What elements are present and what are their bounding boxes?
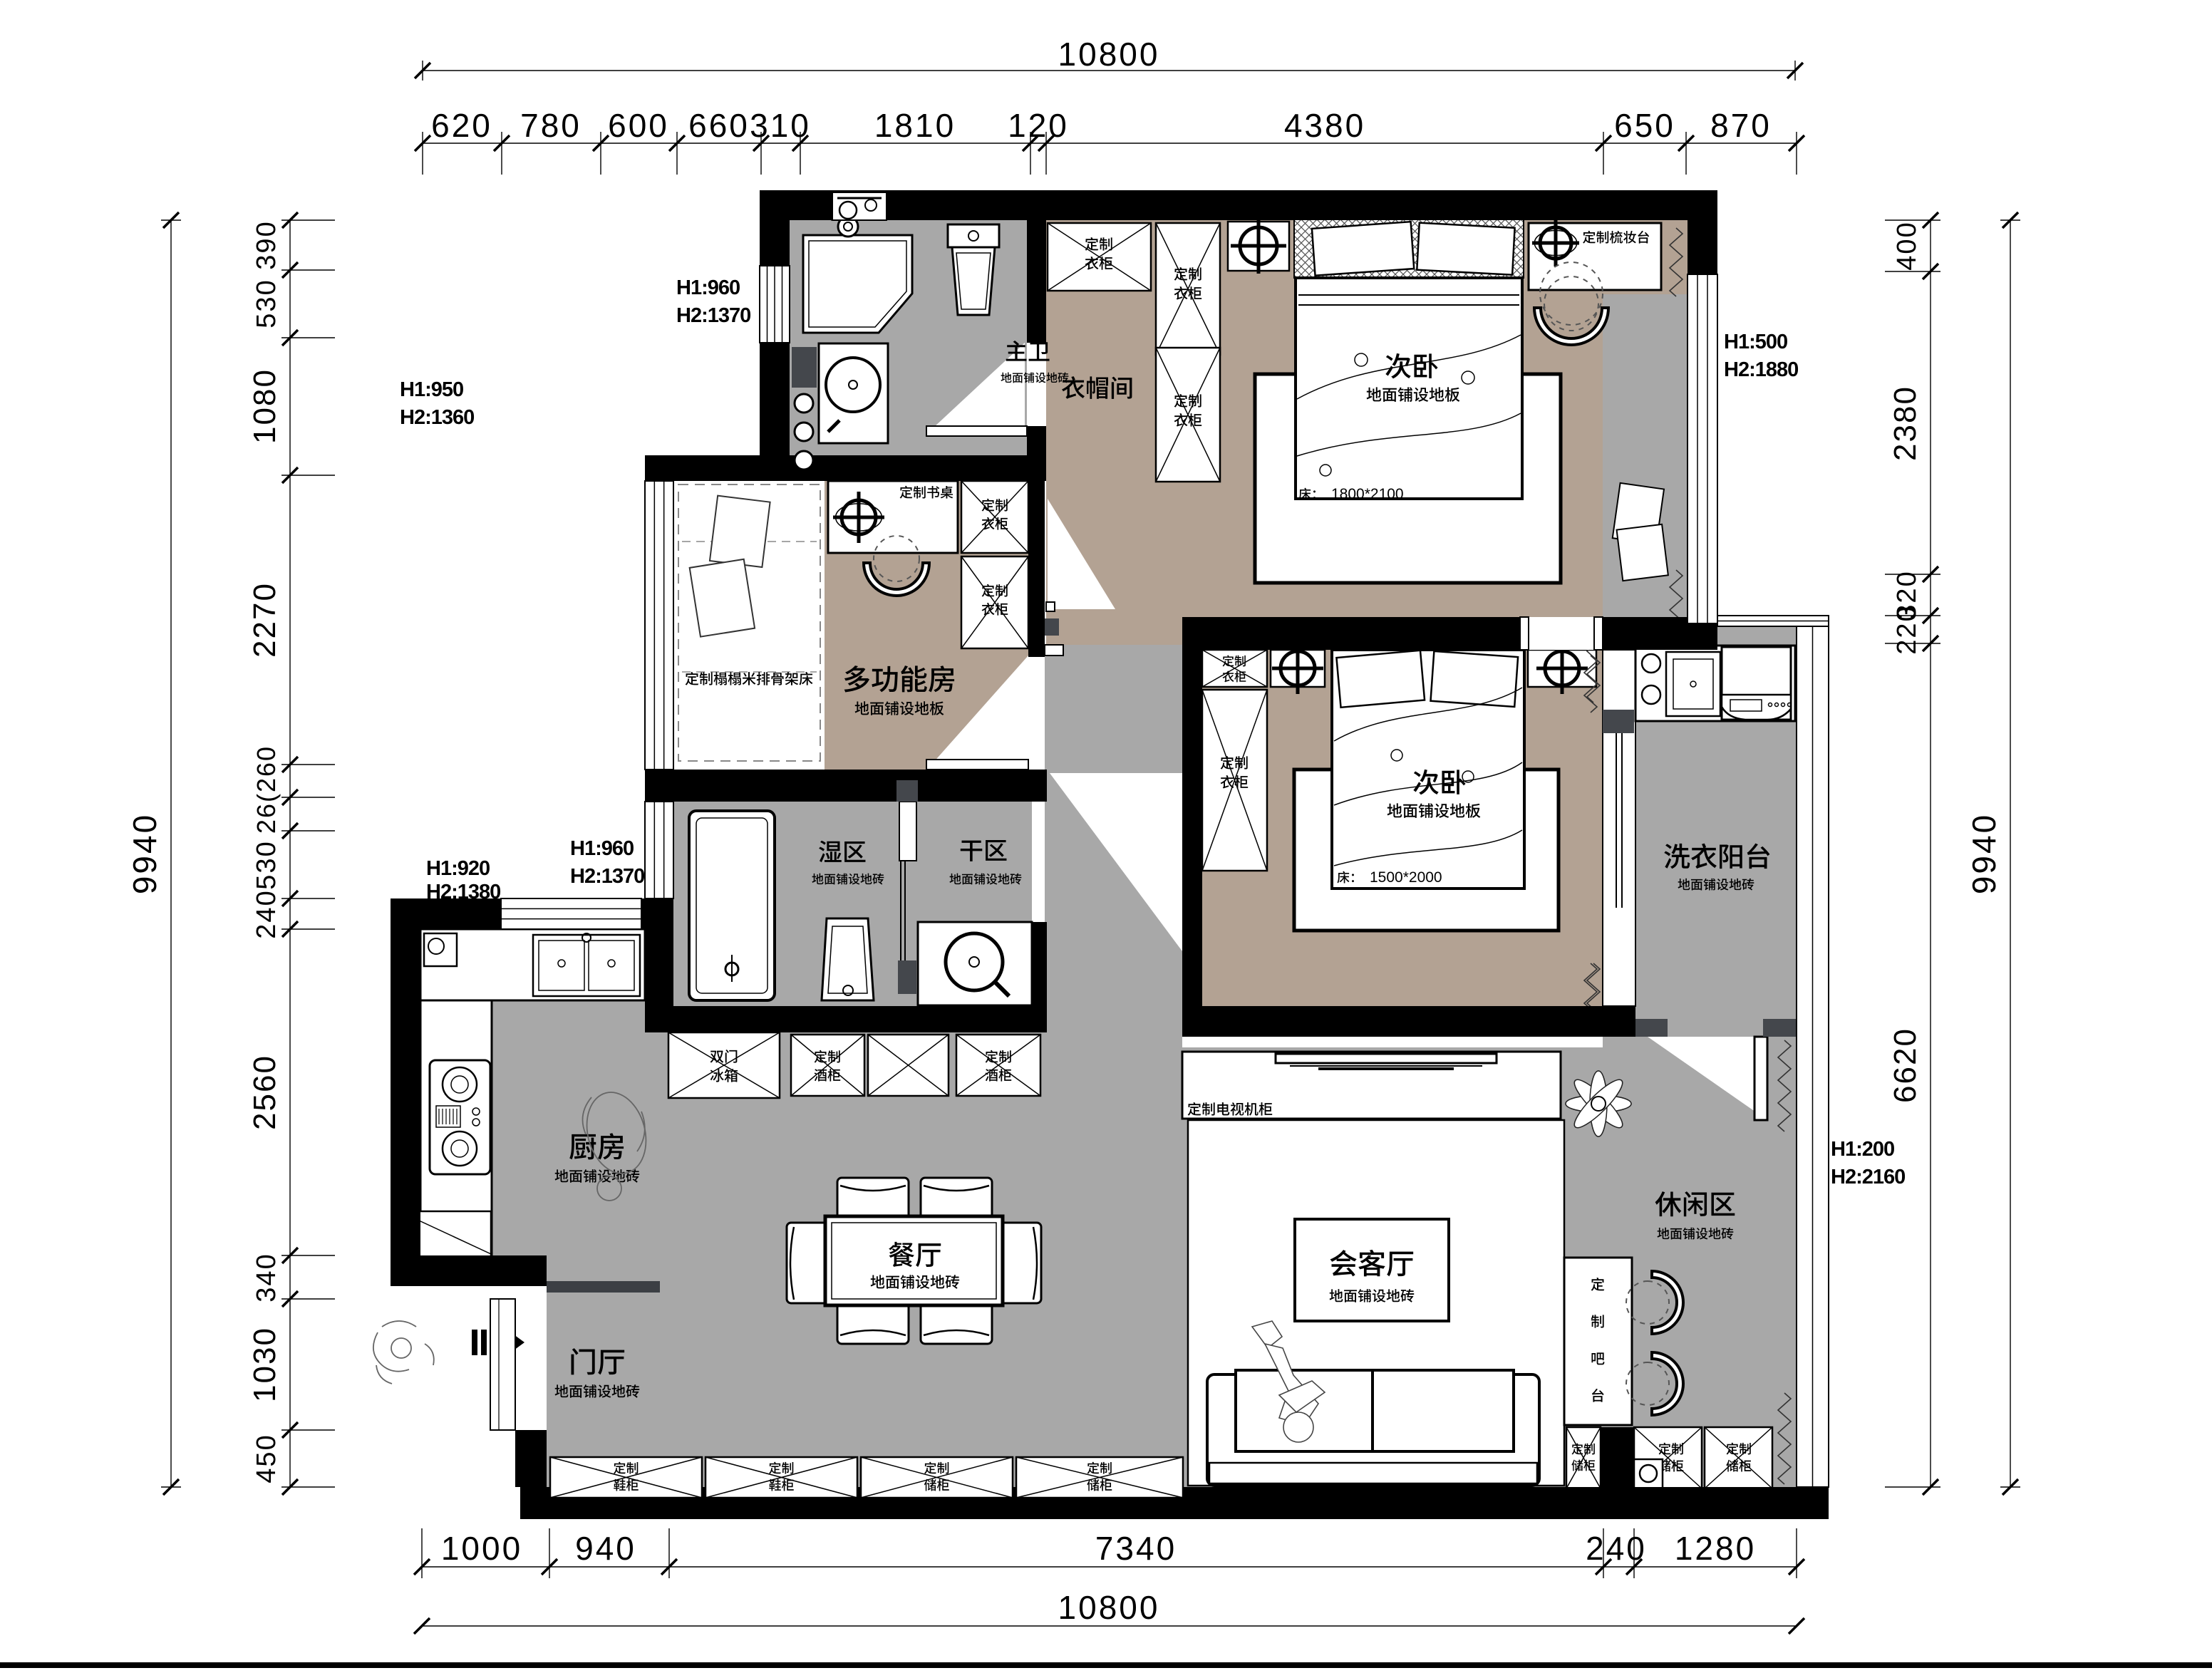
svg-text:530: 530 (252, 279, 281, 328)
svg-text:940: 940 (575, 1530, 636, 1567)
svg-text:650: 650 (1614, 107, 1675, 144)
svg-text:H1:920: H1:920 (426, 857, 490, 880)
svg-text:870: 870 (1710, 107, 1772, 144)
svg-text:10800: 10800 (1058, 36, 1160, 73)
svg-text:340: 340 (252, 1253, 281, 1302)
svg-text:H1:500: H1:500 (1724, 331, 1787, 353)
svg-text:H2:1370: H2:1370 (676, 304, 750, 327)
svg-text:4380: 4380 (1284, 107, 1365, 144)
svg-text:9940: 9940 (1965, 813, 2002, 894)
svg-text:7340: 7340 (1095, 1530, 1177, 1567)
svg-text:H1:960: H1:960 (676, 276, 740, 299)
svg-text:1800*2100: 1800*2100 (1331, 486, 1404, 502)
svg-text:H2:1370: H2:1370 (570, 865, 644, 888)
svg-text:H2:1360: H2:1360 (400, 406, 474, 429)
svg-text:1500*2000: 1500*2000 (1370, 869, 1442, 886)
svg-text:H1:950: H1:950 (400, 378, 463, 401)
svg-text:240: 240 (1586, 1530, 1647, 1567)
svg-text:240: 240 (252, 889, 281, 938)
svg-text:400: 400 (1892, 221, 1922, 270)
svg-text:660: 660 (688, 107, 750, 144)
svg-text:H2:1380: H2:1380 (426, 881, 500, 903)
svg-text:2560: 2560 (247, 1055, 282, 1130)
svg-text:1280: 1280 (1675, 1530, 1756, 1567)
svg-text:2270: 2270 (247, 582, 282, 658)
svg-text:780: 780 (520, 107, 582, 144)
svg-text:6620: 6620 (1888, 1027, 1923, 1103)
svg-text:390: 390 (252, 220, 281, 269)
svg-text:H2:1880: H2:1880 (1724, 358, 1798, 381)
svg-text:220: 220 (1892, 605, 1922, 654)
svg-text:1080: 1080 (247, 368, 282, 444)
svg-text:620: 620 (431, 107, 492, 144)
svg-text:H1:960: H1:960 (570, 837, 634, 860)
svg-text:H1:200: H1:200 (1831, 1138, 1894, 1161)
svg-text:H2:2160: H2:2160 (1831, 1166, 1905, 1188)
svg-text:530: 530 (252, 840, 281, 889)
svg-text:450: 450 (252, 1434, 281, 1483)
svg-text:120: 120 (1008, 107, 1069, 144)
svg-text:9940: 9940 (126, 813, 163, 894)
svg-text:26(260: 26(260 (252, 745, 281, 834)
svg-text:1000: 1000 (441, 1530, 522, 1567)
svg-text:1810: 1810 (874, 107, 956, 144)
svg-text:1030: 1030 (247, 1327, 282, 1402)
svg-text:310: 310 (750, 107, 811, 144)
svg-text:600: 600 (608, 107, 669, 144)
svg-text:10800: 10800 (1058, 1589, 1160, 1626)
svg-text:2380: 2380 (1888, 385, 1923, 461)
